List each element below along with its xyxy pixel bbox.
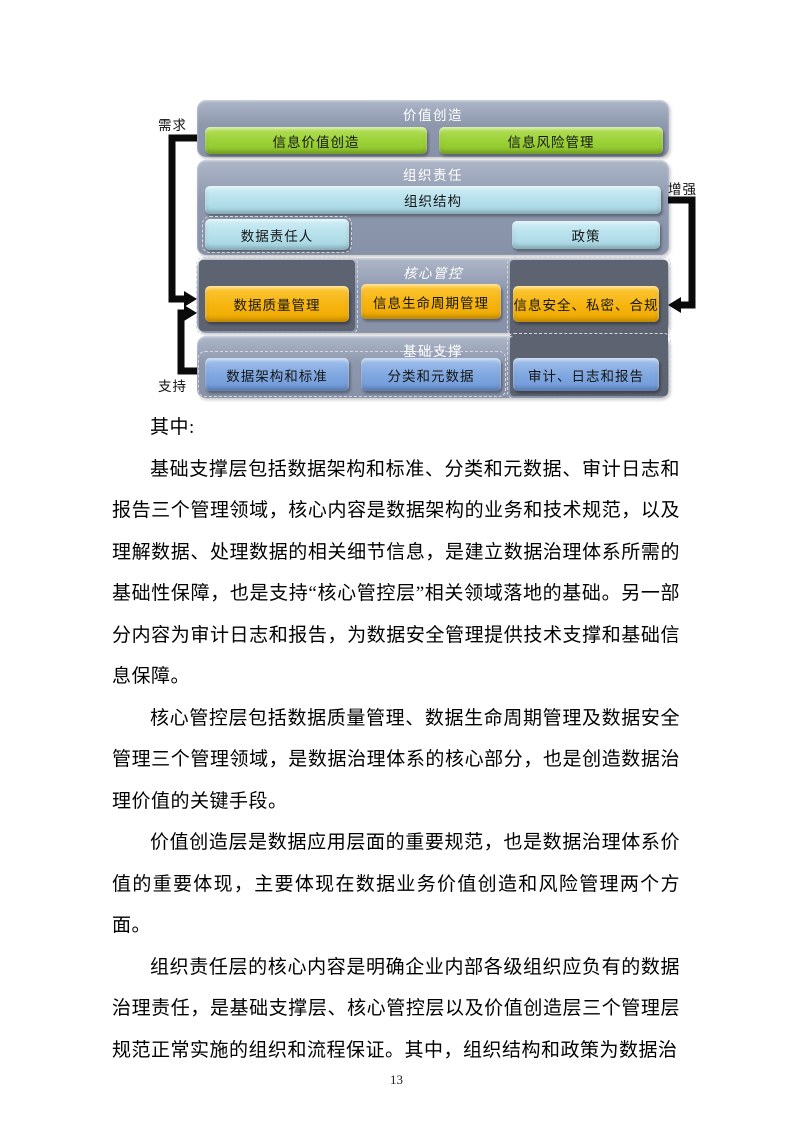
body-text: 其中: 基础支撑层包括数据架构和标准、分类和元数据、审计日志和报告三个管理领域，…: [112, 407, 680, 1071]
paragraph-foundation-layer: 基础支撑层包括数据架构和标准、分类和元数据、审计日志和报告三个管理领域，核心内容…: [112, 449, 680, 698]
box-data-architecture-standards: 数据架构和标准: [205, 358, 349, 391]
box-audit-logs-reports: 审计、日志和报告: [513, 358, 659, 391]
layer-foundation-support: 基础支撑 数据架构和标准 分类和元数据 审计、日志和报告: [197, 336, 669, 398]
layer-title-foundation: 基础支撑: [197, 340, 669, 360]
enhance-arrow-line: [668, 200, 692, 305]
paragraph-intro: 其中:: [112, 407, 680, 449]
layer-title-core-control: 核心管控: [197, 262, 669, 282]
layer-title-organization: 组织责任: [197, 164, 669, 184]
box-organization-structure: 组织结构: [205, 186, 661, 214]
label-enhance: 增强: [668, 178, 697, 198]
support-arrow-line: [181, 313, 197, 371]
label-support: 支持: [158, 375, 187, 395]
box-info-value-creation: 信息价值创造: [205, 127, 427, 154]
box-info-security-privacy-compliance: 信息安全、私密、合规: [513, 286, 659, 322]
document-page: 价值创造 信息价值创造 信息风险管理 组织责任 组织结构 数据责任人 政策 核心…: [0, 0, 793, 1122]
label-demand: 需求: [158, 114, 187, 134]
page-number: 13: [0, 1072, 793, 1088]
box-info-lifecycle-management: 信息生命周期管理: [361, 284, 501, 319]
layer-organization-responsibility: 组织责任 组织结构 数据责任人 政策: [197, 160, 669, 255]
box-classification-metadata: 分类和元数据: [361, 358, 501, 391]
layer-core-control: 核心管控 数据质量管理 信息生命周期管理 信息安全、私密、合规: [197, 258, 669, 333]
box-info-risk-management: 信息风险管理: [439, 127, 663, 154]
box-data-owner: 数据责任人: [205, 219, 349, 250]
paragraph-organization-layer: 组织责任层的核心内容是明确企业内部各级组织应负有的数据治理责任，是基础支撑层、核…: [112, 947, 680, 1072]
box-policy: 政策: [512, 221, 660, 249]
data-governance-diagram: 价值创造 信息价值创造 信息风险管理 组织责任 组织结构 数据责任人 政策 核心…: [150, 95, 705, 407]
enhance-arrowhead: [668, 297, 681, 313]
box-data-quality-management: 数据质量管理: [205, 286, 349, 322]
demand-arrowhead: [184, 291, 197, 307]
demand-arrow-line: [172, 138, 197, 299]
layer-value-creation: 价值创造 信息价值创造 信息风险管理: [197, 100, 669, 157]
layer-title-value-creation: 价值创造: [197, 104, 669, 124]
support-arrowhead: [184, 305, 197, 321]
paragraph-core-control-layer: 核心管控层包括数据质量管理、数据生命周期管理及数据安全管理三个管理领域，是数据治…: [112, 698, 680, 823]
paragraph-value-creation-layer: 价值创造层是数据应用层面的重要规范，也是数据治理体系价值的重要体现，主要体现在数…: [112, 822, 680, 947]
